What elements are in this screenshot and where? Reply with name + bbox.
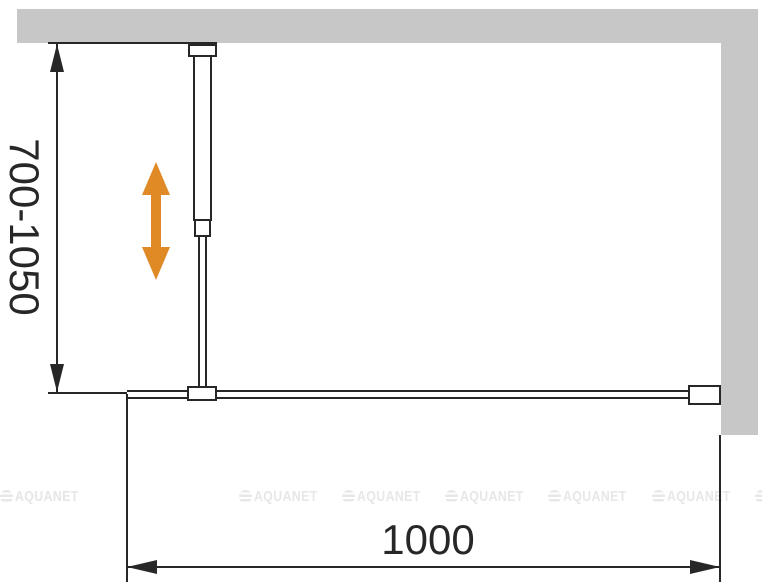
support-bar-outer-tube — [193, 55, 212, 221]
aquanet-logo-icon — [755, 490, 762, 503]
support-bar-glass-clamp — [187, 386, 217, 401]
horizontal-dimension-line — [127, 566, 720, 568]
dimension-arrow-up-icon — [50, 44, 64, 72]
watermark-text: AQUANET — [563, 488, 627, 505]
dimension-arrow-left-icon — [127, 560, 157, 574]
glass-extension-line — [48, 392, 127, 394]
watermark-text: AQUANET — [357, 488, 421, 505]
wall-right — [721, 9, 758, 435]
aquanet-logo-icon — [445, 490, 458, 503]
aquanet-logo-icon — [652, 490, 665, 503]
watermark: AQUANET — [652, 489, 745, 504]
vertical-dimension-line — [56, 44, 58, 392]
watermark: AQUANET — [239, 489, 332, 504]
dimension-arrow-down-icon — [50, 364, 64, 392]
aquanet-logo-icon — [0, 490, 13, 503]
aquanet-logo-icon — [342, 490, 355, 503]
aquanet-logo-icon — [239, 490, 252, 503]
glass-wall-profile — [688, 385, 721, 405]
dimension-arrow-right-icon — [690, 560, 720, 574]
adjust-arrow-up-head — [142, 162, 170, 195]
adjust-arrow-down-head — [142, 247, 170, 280]
adjust-arrow-shaft — [151, 192, 161, 249]
horizontal-dimension-label: 1000 — [328, 518, 528, 562]
diagram-canvas: AQUANET AQUANET AQUANET AQUANET AQUANET … — [0, 0, 762, 585]
watermark-text: AQUANET — [460, 488, 524, 505]
watermark-text: AQUANET — [667, 488, 731, 505]
vertical-dimension-label: 700-1050 — [2, 117, 46, 337]
aquanet-logo-icon — [548, 490, 561, 503]
watermark: AQUANET — [342, 489, 435, 504]
wall-top — [17, 9, 758, 43]
watermark: AQUANET — [0, 489, 93, 504]
left-extension-line — [126, 394, 128, 582]
support-bar-inner-tube — [198, 235, 207, 388]
watermark-text: AQUANET — [15, 488, 79, 505]
watermark-text: AQUANET — [254, 488, 318, 505]
watermark: AQUANET — [755, 489, 762, 504]
watermark: AQUANET — [548, 489, 641, 504]
watermark: AQUANET — [445, 489, 538, 504]
